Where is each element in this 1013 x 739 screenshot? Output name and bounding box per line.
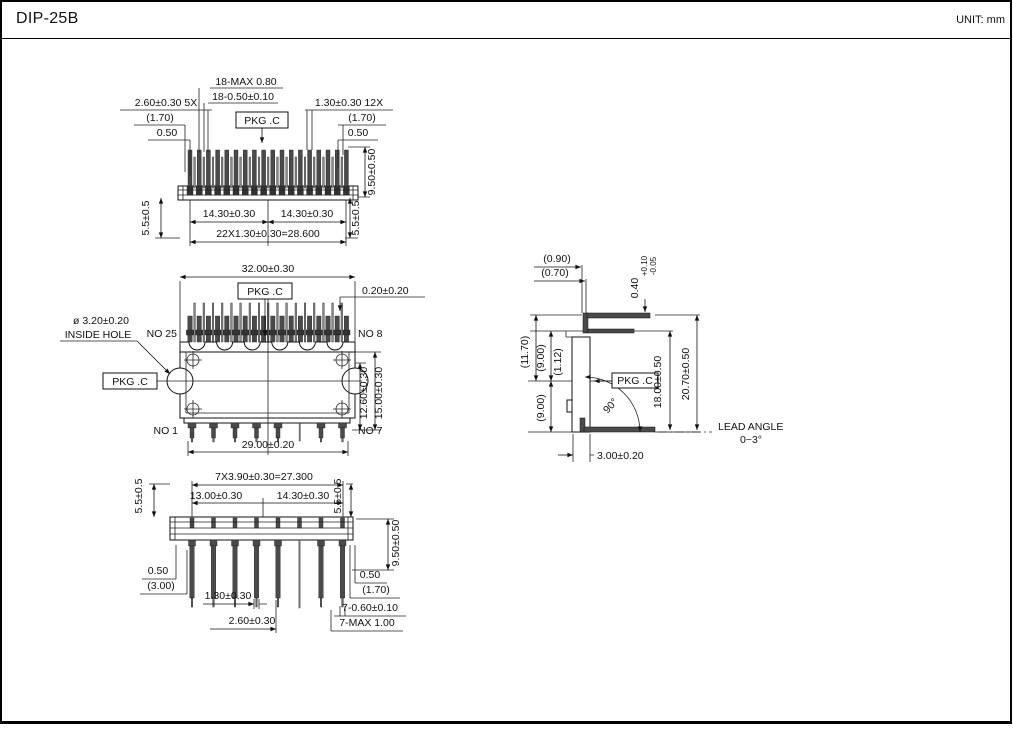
- dim-55-right-label: 5.5±0.5: [332, 478, 344, 513]
- front-view: 32.00±0.30 PKG .C 0.20±0.20 ø 3.20±0.20 …: [60, 263, 425, 456]
- dim-7-max-label: 7-MAX 1.00: [339, 617, 395, 629]
- ref-900-lower-label: (9.00): [535, 394, 547, 421]
- bottom-view: 5.5±0.5 7X3.90±0.30=27.300 13.00±0.30 14…: [133, 471, 406, 633]
- pkg-c-label: PKG .C: [244, 115, 280, 127]
- dim-7-060-label: 7-0.60±0.10: [342, 602, 398, 614]
- ref-900-upper-label: (9.00): [535, 344, 547, 371]
- dim-050-right-label: 0.50: [360, 569, 381, 581]
- dim-130-label: 1.30±0.30: [205, 590, 252, 602]
- dim-050-left-label: 0.50: [157, 127, 178, 139]
- lead-angle-label: LEAD ANGLE: [718, 421, 783, 433]
- ref-112-label: (1.12): [552, 348, 564, 375]
- dim-1430-left-label: 14.30±0.30: [203, 208, 256, 220]
- dim-050-left-label: 0.50: [148, 565, 169, 577]
- top-view: 18-MAX 0.80 18-0.50±0.10 2.60±0.30 5X (1…: [120, 76, 393, 246]
- pin-no1-label: NO 1: [153, 425, 178, 437]
- dim-300-label: 3.00±0.20: [597, 450, 644, 462]
- dim-260-label: 2.60±0.30: [229, 615, 276, 627]
- dim-3200-label: 32.00±0.30: [242, 263, 295, 275]
- side-view-body-step: [567, 400, 572, 412]
- dim-1260-label: 12.60±0.30: [358, 367, 370, 420]
- ref-070-label: (0.70): [541, 267, 568, 279]
- pin-no25-label: NO 25: [147, 328, 178, 340]
- dim-2900-label: 29.00±0.20: [242, 439, 295, 451]
- front-view-base-strip: [184, 418, 350, 423]
- dim-55-left-label: 5.5±0.5: [133, 478, 145, 513]
- dim-950-label: 9.50±0.50: [366, 149, 378, 196]
- side-view-top-lead: [587, 313, 650, 318]
- ref-1170-label: (11.70): [519, 336, 531, 369]
- dim-040-minus-label: -0.05: [649, 256, 658, 275]
- hole-diameter-label: ø 3.20±0.20: [73, 315, 129, 327]
- dim-130-12x-label: 1.30±0.30 12X: [315, 97, 383, 109]
- package-outline-drawing: 18-MAX 0.80 18-0.50±0.10 2.60±0.30 5X (1…: [0, 0, 1013, 739]
- dim-260-5x-label: 2.60±0.30 5X: [135, 97, 197, 109]
- dim-7x390-label: 7X3.90±0.30=27.300: [215, 471, 313, 483]
- pkg-c-side-label: PKG .C: [617, 375, 653, 387]
- pkg-c-left-label: PKG .C: [112, 376, 148, 388]
- angle-90-label: 90°: [601, 396, 621, 416]
- dim-1430-label: 14.30±0.30: [277, 490, 330, 502]
- bottom-view-body-bar: [170, 517, 353, 540]
- dim-1300-label: 13.00±0.30: [190, 490, 243, 502]
- front-view-body: [180, 352, 355, 418]
- ref-170-left-label: (1.70): [146, 112, 173, 124]
- dim-18-tol-label: 18-0.50±0.10: [212, 91, 274, 103]
- dim-18-max-label: 18-MAX 0.80: [215, 76, 276, 88]
- dim-050-right-label: 0.50: [348, 127, 369, 139]
- ref-170-right-label: (1.70): [348, 112, 375, 124]
- pkg-c-top-label: PKG .C: [247, 286, 283, 298]
- dim-1430-right-label: 14.30±0.30: [281, 208, 334, 220]
- lead-angle-value: 0~3°: [740, 434, 762, 446]
- dim-1500-label: 15.00±0.30: [373, 367, 385, 420]
- front-view-scallop-edge: [180, 342, 355, 352]
- ref-090-label: (0.90): [543, 253, 570, 265]
- dim-55-right-label: 5.5±0.5: [350, 200, 362, 235]
- side-view: (0.90) (0.70) 0.40 +0.10 -0.05 (11.70) (…: [519, 253, 783, 462]
- dim-040-label: 0.40: [629, 278, 641, 299]
- side-view-bottom-lead: [584, 427, 655, 432]
- pin-no8-label: NO 8: [358, 328, 383, 340]
- dim-950-label: 9.50±0.50: [390, 520, 402, 567]
- dim-020-label: 0.20±0.20: [362, 285, 409, 297]
- dim-1800-label: 18.00±0.50: [652, 356, 664, 409]
- ref-300-label: (3.00): [147, 580, 174, 592]
- dim-040-plus-label: +0.10: [640, 255, 649, 276]
- datasheet-page: DIP-25B UNIT: mm: [0, 0, 1013, 739]
- dim-55-left-label: 5.5±0.5: [140, 200, 152, 235]
- inside-hole-leader: [137, 341, 170, 374]
- inside-hole-label: INSIDE HOLE: [65, 329, 132, 341]
- pin-no7-label: NO 7: [358, 425, 383, 437]
- dim-22x-label: 22X1.30±0.30=28.600: [216, 228, 320, 240]
- ref-170-label: (1.70): [362, 584, 389, 596]
- dim-2070-label: 20.70±0.50: [680, 348, 692, 401]
- side-view-second-lead: [588, 329, 634, 333]
